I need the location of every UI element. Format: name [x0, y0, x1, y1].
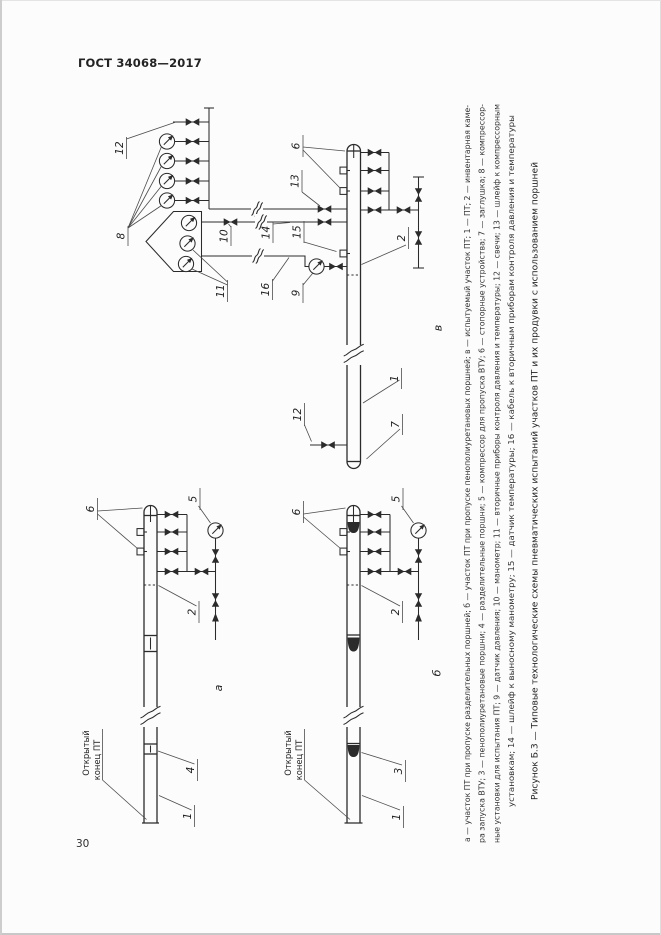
- right-valve-manifold: [361, 149, 425, 268]
- open-end-label-b-line2: конец ПТ: [294, 739, 304, 780]
- legend-line-4: установкам; 14 — шлейф к выносному маном…: [507, 115, 516, 807]
- pipe-break-icon: [343, 706, 365, 727]
- valve-icon: [398, 568, 412, 575]
- pipe-break-icon: [343, 344, 365, 365]
- vent-branch: [310, 441, 347, 448]
- part-label-1-a: 1: [182, 813, 194, 820]
- pressure-sensor-icon: [309, 259, 324, 274]
- figure-caption: Рисунок Б.3 — Типовые технологические сх…: [531, 162, 541, 800]
- valve-icon: [397, 206, 411, 213]
- valve-icon: [415, 231, 422, 245]
- figure-legend: а — участок ПТ при пропуске разделительн…: [463, 104, 541, 843]
- gauge-icon: [180, 236, 195, 251]
- valve-icon: [368, 511, 382, 518]
- part-label-7: 7: [390, 421, 402, 428]
- compressor-station-manifold: [159, 108, 214, 209]
- leader-lines-b: [304, 488, 414, 828]
- compressor-icon: [208, 523, 223, 538]
- valve-icon: [186, 118, 200, 125]
- open-end-label-b-line1: Открытый: [283, 730, 293, 775]
- part-label-6-top: 6: [291, 142, 303, 149]
- foam-piston-icon: [348, 522, 360, 533]
- valve-icon: [368, 206, 382, 213]
- stop-device-icon: [340, 167, 350, 174]
- part-label-10: 10: [219, 229, 231, 243]
- valve-icon: [368, 528, 382, 535]
- valve-icon: [186, 157, 200, 164]
- valve-icon: [368, 568, 382, 575]
- diagram-b-foam-pistons: 6 5 2 3 1 Открытый конец ПТ б: [283, 488, 444, 828]
- part-label-2-top: 2: [396, 234, 408, 241]
- valve-icon: [368, 167, 382, 174]
- part-label-11: 11: [215, 284, 227, 297]
- part-label-6-a: 6: [85, 505, 97, 512]
- open-end-label-a-line1: Открытый: [81, 730, 91, 775]
- part-label-3-b: 3: [393, 768, 405, 775]
- stop-device-icon: [137, 548, 147, 555]
- valve-icon: [165, 548, 179, 555]
- part-label-9: 9: [291, 289, 303, 296]
- legend-line-2: ра запуска ВТУ; 3 — пенополиуретановые п…: [478, 104, 487, 843]
- diagram-v-tested-section: 12 8 11 13 10 14 16 9 15 6 2 12 1 7 в: [114, 108, 445, 469]
- open-end-label-a-line2: конец ПТ: [92, 739, 102, 780]
- document-page: ГОСТ 34068—2017 30: [0, 0, 661, 935]
- temperature-sensor-icon: [340, 250, 350, 257]
- valve-icon: [318, 205, 332, 212]
- diagram-a-separator-pistons: 6 5 2 4 1 Открытый конец ПТ а: [81, 488, 225, 827]
- valve-icon: [212, 593, 219, 607]
- part-label-12-top: 12: [114, 141, 126, 155]
- part-label-2-a: 2: [187, 608, 199, 615]
- instrument-house: [146, 212, 202, 272]
- valve-icon: [165, 568, 179, 575]
- valve-icon: [165, 528, 179, 535]
- valve-icon: [415, 188, 422, 202]
- part-label-12-bottom: 12: [292, 408, 304, 422]
- valve-icon: [195, 568, 209, 575]
- valve-icon: [329, 263, 343, 270]
- stop-device-icon: [340, 548, 350, 555]
- part-label-15: 15: [292, 225, 304, 239]
- flow-arrow-icon: [212, 613, 219, 622]
- flow-arrow-icon: [415, 613, 422, 622]
- valve-icon: [165, 511, 179, 518]
- part-label-6-b: 6: [291, 508, 303, 515]
- valve-icon: [368, 548, 382, 555]
- manifold-b: [360, 511, 426, 640]
- gauge-icon: [178, 256, 193, 271]
- stop-device-icon: [137, 529, 147, 536]
- pipe-tested: [340, 145, 365, 469]
- pipe-b: [340, 506, 365, 824]
- part-label-1-top: 1: [389, 375, 401, 382]
- part-label-4-a: 4: [185, 767, 197, 774]
- valve-icon: [186, 138, 200, 145]
- sublabel-v: в: [432, 325, 445, 331]
- part-label-2-b: 2: [390, 608, 402, 615]
- compressor-icon: [411, 523, 426, 538]
- valve-icon: [318, 218, 332, 225]
- valve-icon: [321, 441, 335, 448]
- foam-piston-icon: [348, 745, 360, 757]
- part-label-14: 14: [261, 226, 273, 239]
- valve-icon: [186, 197, 200, 204]
- manifold-a: [157, 511, 223, 640]
- valve-icon: [212, 549, 219, 563]
- valve-icon: [415, 549, 422, 563]
- valve-icon: [224, 218, 238, 225]
- legend-line-3: ные установки для испытания ПТ; 9 — датч…: [493, 104, 502, 843]
- leader-lines-a: [98, 488, 211, 827]
- gauge-icon: [181, 215, 196, 230]
- stop-device-icon: [340, 529, 350, 536]
- part-label-5-a: 5: [188, 495, 200, 502]
- valve-icon: [415, 593, 422, 607]
- legend-line-1: а — участок ПТ при пропуске разделительн…: [463, 105, 472, 842]
- sublabel-b: б: [431, 669, 444, 676]
- valve-icon: [186, 177, 200, 184]
- pipe-break-icon: [140, 706, 162, 727]
- part-label-8: 8: [116, 232, 128, 239]
- sublabel-a: а: [212, 684, 225, 691]
- valve-icon: [368, 149, 382, 156]
- foam-piston-icon: [348, 638, 360, 652]
- part-label-13: 13: [290, 174, 302, 187]
- line-break-icon: [252, 248, 264, 264]
- valve-icon: [368, 187, 382, 194]
- part-label-1-b: 1: [391, 814, 403, 821]
- stop-device-icon: [340, 188, 350, 195]
- part-label-16: 16: [260, 283, 272, 297]
- figure-b3-diagram: 12 8 11 13 10 14 16 9 15 6 2 12 1 7 в: [0, 0, 661, 935]
- part-label-5-b: 5: [391, 495, 403, 502]
- pipe-a: [137, 506, 162, 824]
